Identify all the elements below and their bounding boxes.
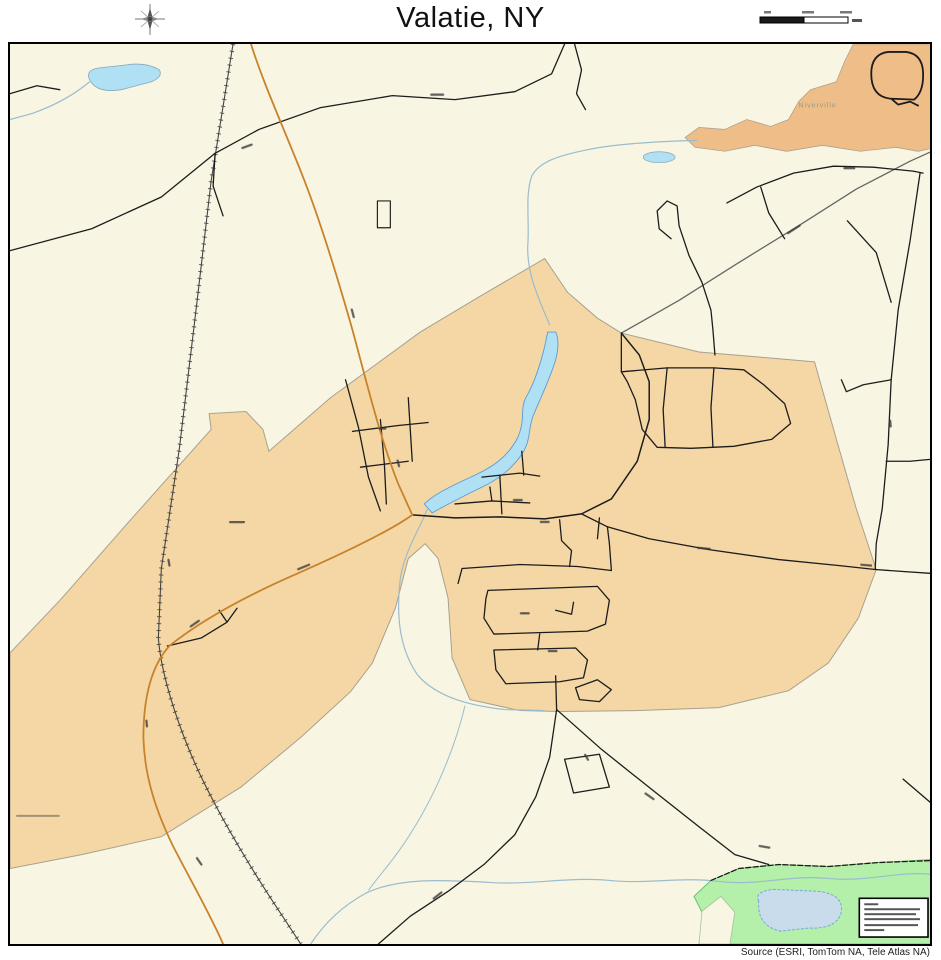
- hamlet-polygon: [685, 44, 930, 151]
- map-canvas: Niverville: [10, 44, 930, 944]
- compass-rose-icon: [130, 2, 170, 38]
- legend-line: [864, 918, 920, 920]
- road-top-left-corner: [10, 86, 60, 94]
- park-pond: [758, 889, 842, 931]
- lake: [88, 64, 160, 91]
- scale-bar: [748, 4, 868, 32]
- road-br-corner: [903, 779, 930, 803]
- legend-line: [864, 929, 884, 931]
- road-nw-spur: [213, 153, 223, 216]
- road-se-diagonal: [557, 710, 769, 865]
- road-hamlet-diagonal: [621, 151, 930, 333]
- road-east-vertical: [875, 173, 920, 569]
- legend-line: [864, 903, 878, 905]
- road-east-branch-west: [841, 380, 891, 392]
- hamlet-label: Niverville: [799, 103, 837, 110]
- road-top-center-squiggle: [575, 44, 586, 110]
- legend-line: [864, 908, 920, 910]
- road-top-right-branch: [761, 187, 785, 239]
- village-boundary-polygon: [10, 259, 876, 869]
- legend-box: [859, 898, 928, 937]
- stream-connector: [368, 706, 465, 891]
- road-top-right-horizontal: [727, 166, 923, 203]
- land-areas: [10, 44, 930, 944]
- small-pond: [643, 152, 675, 163]
- road-east-diagonal: [847, 221, 891, 302]
- road-hook-north: [657, 201, 715, 355]
- small-block-outline: [377, 201, 390, 228]
- legend-line: [864, 913, 916, 915]
- road-sw-exit: [378, 710, 556, 944]
- map-border: Niverville: [8, 42, 932, 946]
- legend-line: [864, 924, 918, 926]
- road-east-branch-east: [886, 459, 930, 461]
- map-page: Valatie, NY: [0, 0, 941, 960]
- source-text: Source (ESRI, TomTom NA, Tele Atlas NA): [741, 947, 930, 958]
